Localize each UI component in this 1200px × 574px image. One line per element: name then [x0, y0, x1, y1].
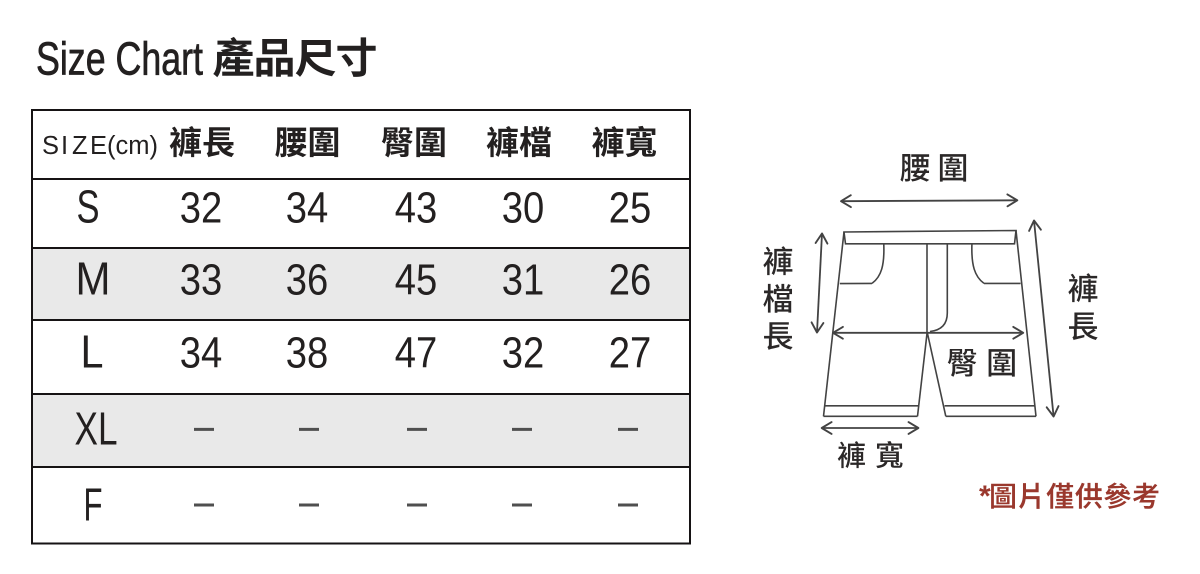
svg-text:36: 36 [286, 255, 329, 304]
svg-text:34: 34 [180, 329, 223, 378]
svg-text:E: E [90, 132, 107, 160]
svg-text:S: S [42, 132, 59, 160]
svg-text:45: 45 [395, 255, 438, 304]
svg-text:25: 25 [609, 184, 652, 233]
svg-text:47: 47 [395, 329, 438, 378]
svg-text:(cm): (cm) [107, 132, 158, 160]
svg-text:32: 32 [180, 184, 223, 233]
svg-text:38: 38 [286, 329, 329, 378]
svg-text:*: * [979, 480, 991, 513]
svg-text:S: S [77, 181, 100, 233]
svg-text:F: F [84, 478, 103, 530]
svg-text:Size Chart: Size Chart [36, 33, 203, 85]
svg-text:30: 30 [502, 184, 545, 233]
svg-text:Z: Z [72, 132, 88, 160]
svg-text:27: 27 [609, 329, 652, 378]
svg-text:33: 33 [180, 255, 223, 304]
svg-text:I: I [61, 132, 68, 160]
svg-text:34: 34 [286, 184, 329, 233]
svg-text:XL: XL [75, 403, 118, 455]
svg-text:31: 31 [502, 255, 545, 304]
svg-text:32: 32 [502, 329, 545, 378]
svg-text:43: 43 [395, 184, 438, 233]
svg-text:M: M [76, 252, 111, 304]
svg-text:L: L [81, 326, 104, 378]
svg-text:26: 26 [609, 255, 652, 304]
